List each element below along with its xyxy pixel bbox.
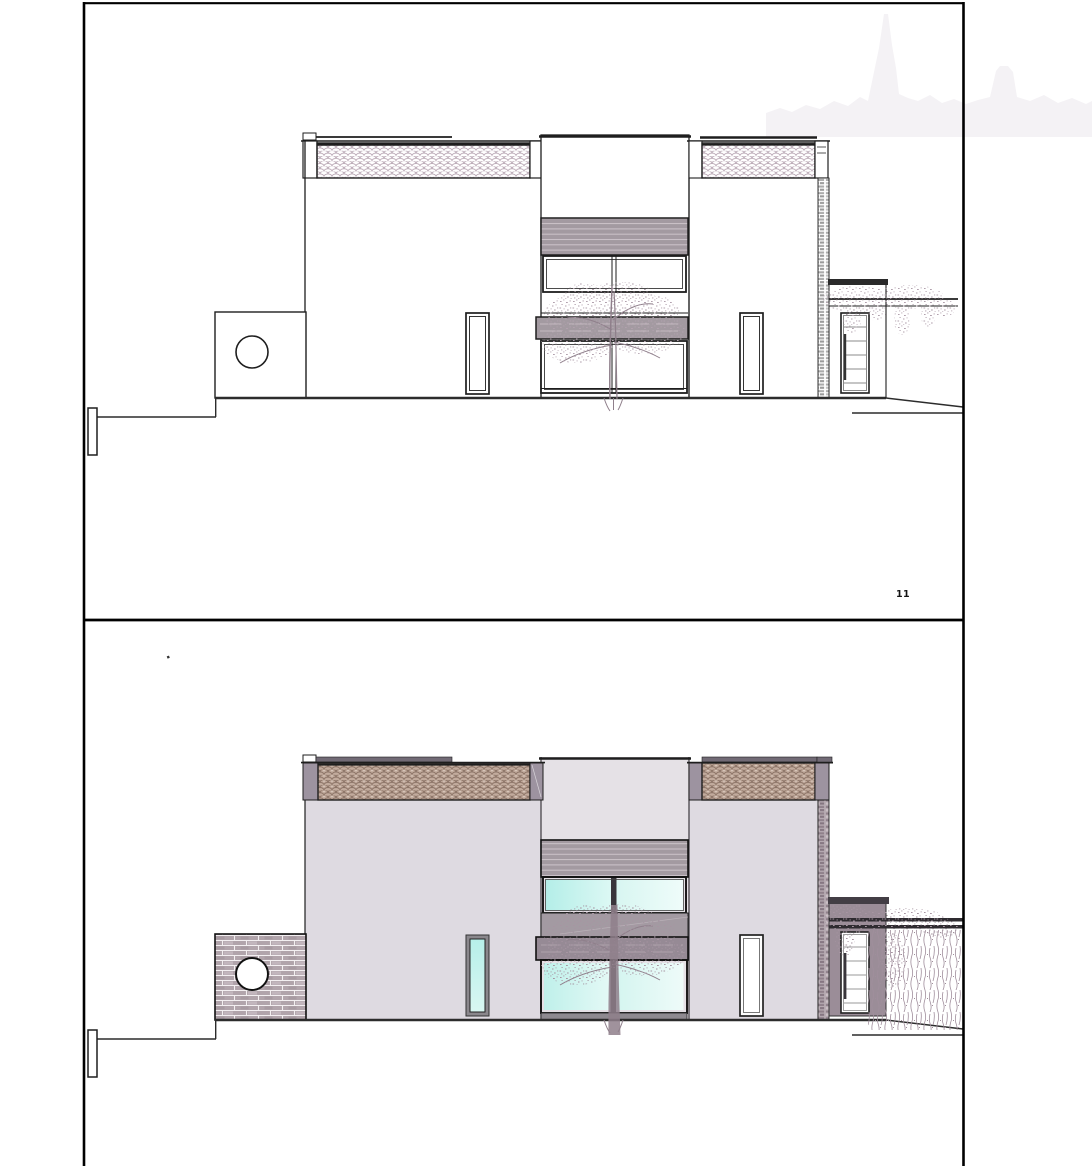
door-handle (844, 334, 846, 380)
sheet-number: 11 (896, 589, 910, 600)
roof-band-left (301, 755, 545, 800)
boundary-post (88, 408, 97, 455)
garden-wall (215, 312, 306, 398)
ground-line (88, 1020, 963, 1077)
lower-elevation-drawing (88, 755, 963, 1077)
brick-pier (818, 178, 829, 398)
drawing-sheet: 11 (0, 0, 1092, 1166)
garden-wall (215, 934, 306, 1020)
roof-band-right (687, 138, 830, 179)
porthole-window (236, 958, 268, 990)
city-skyline-watermark (766, 14, 1092, 137)
louver-screen (541, 218, 688, 255)
narrow-window-left (466, 313, 489, 394)
stray-mark (167, 656, 170, 659)
upper-elevation-drawing: 11 (88, 14, 1092, 659)
roof-band-left (301, 133, 545, 178)
entry-porch (822, 897, 963, 1030)
narrow-window-right (740, 313, 763, 394)
narrow-window-right (740, 935, 763, 1016)
door-handle (844, 953, 847, 999)
narrow-window-left (466, 935, 489, 1016)
ground-line (88, 398, 963, 455)
brick-pier (818, 800, 829, 1020)
roof-band-right (687, 757, 833, 800)
boundary-post (88, 1030, 97, 1077)
elevation-canvas: 11 (0, 0, 1092, 1166)
entry-porch (822, 279, 958, 398)
entry-canopy (828, 279, 888, 285)
porthole-window (236, 336, 268, 368)
entry-canopy (828, 897, 889, 904)
louver-screen (541, 840, 688, 877)
